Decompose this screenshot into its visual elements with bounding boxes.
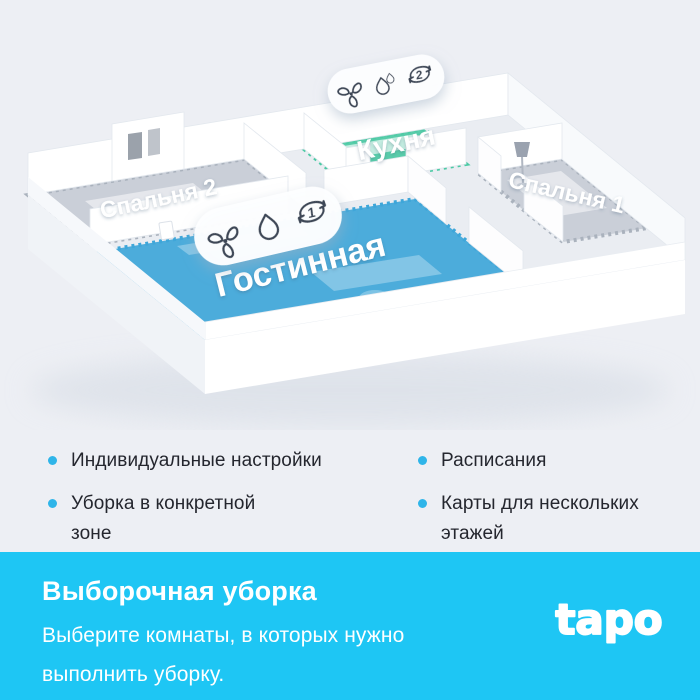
feature-multifloor-maps: Карты для нескольких этажей: [418, 489, 639, 549]
feature-text: Уборка в конкретной зоне: [71, 489, 255, 549]
feature-schedules: Расписания: [418, 446, 639, 476]
feature-individual-settings: Индивидуальные настройки: [48, 446, 418, 476]
bullet-icon: [418, 499, 427, 508]
footer-banner: Выборочная уборка Выберите комнаты, в ко…: [0, 552, 700, 700]
hero-illustration: Спальня 2 Кухня Спальня 1 Гостинная 2 1: [0, 0, 700, 430]
feature-text: Индивидуальные настройки: [71, 446, 322, 476]
tapo-logo-text: tapo: [555, 595, 662, 644]
feature-zone-cleaning: Уборка в конкретной зоне: [48, 489, 418, 549]
feature-text: Карты для нескольких этажей: [441, 489, 639, 549]
features-section: Индивидуальные настройки Уборка в конкре…: [0, 430, 700, 552]
bullet-icon: [48, 499, 57, 508]
bullet-icon: [48, 456, 57, 465]
feature-text: Расписания: [441, 446, 546, 476]
robot-dock: [159, 221, 174, 240]
tapo-logo: tapo: [548, 594, 670, 653]
bullet-icon: [418, 456, 427, 465]
floorplan-illustration: Спальня 2 Кухня Спальня 1 Гостинная 2 1: [0, 0, 700, 430]
